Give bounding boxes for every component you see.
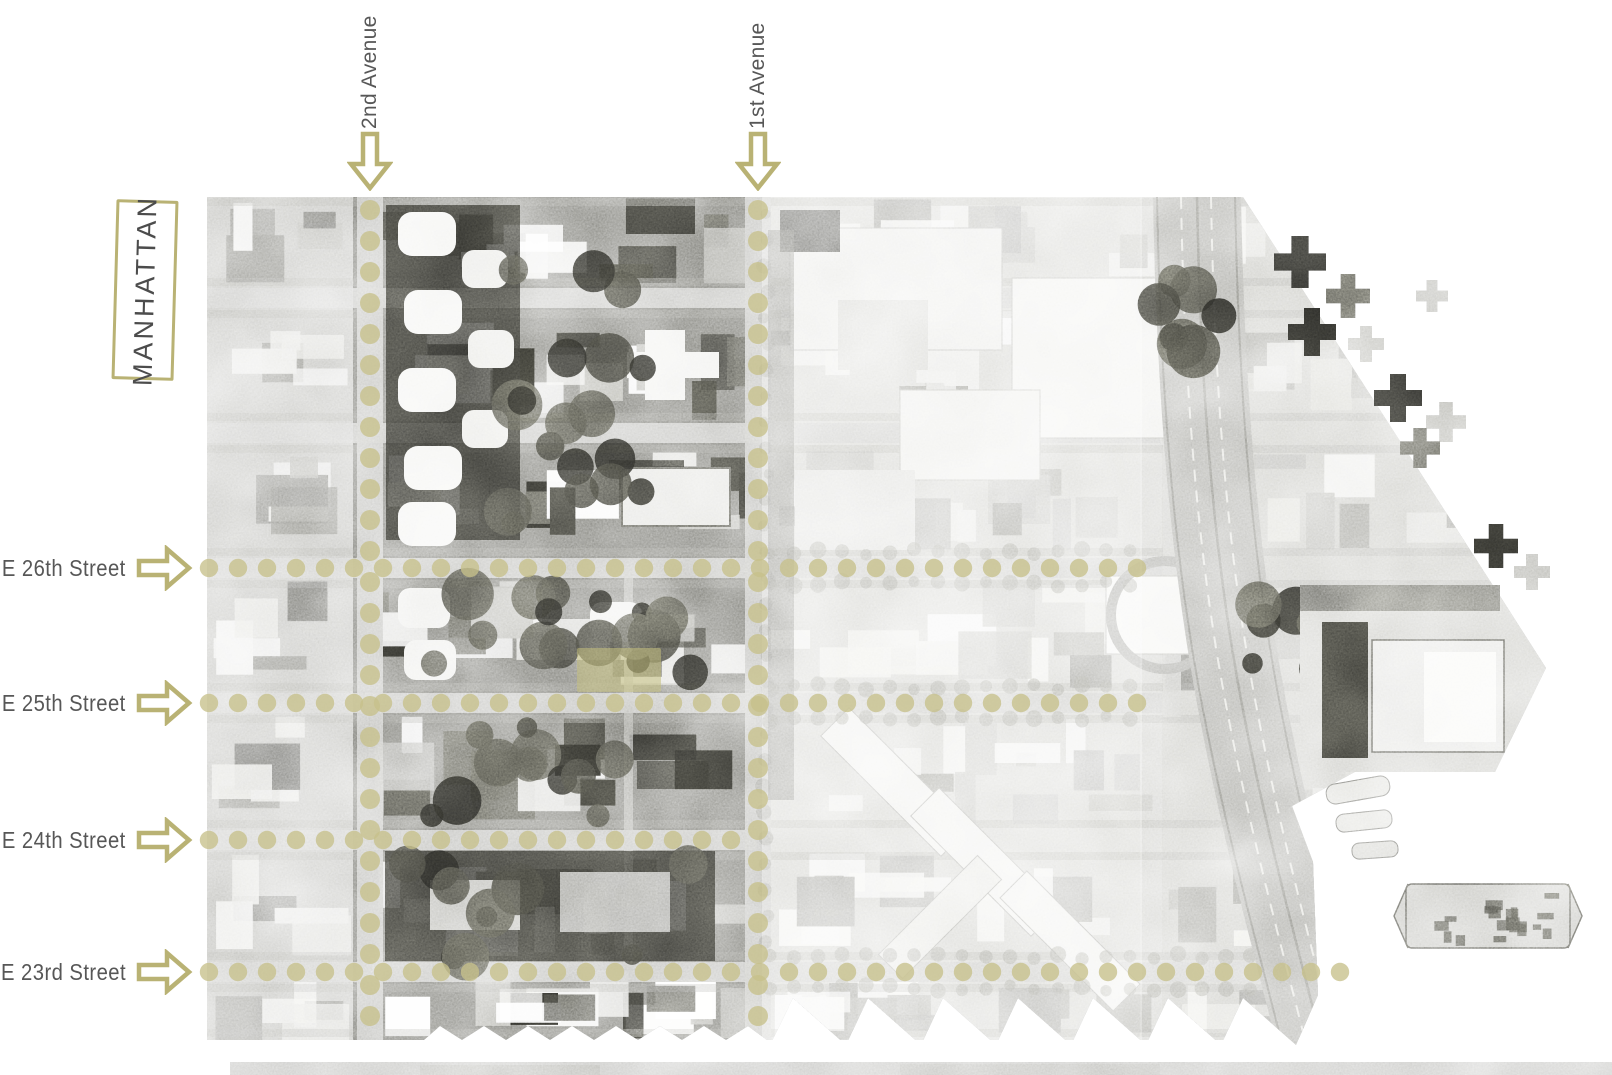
avenue-dot — [360, 851, 380, 871]
avenue-dot — [360, 231, 380, 251]
street-dot — [1041, 963, 1059, 981]
street-dot — [316, 831, 334, 849]
street-dot — [1070, 694, 1088, 712]
street-dot — [983, 694, 1001, 712]
street-dot — [635, 831, 653, 849]
street-dot — [954, 559, 972, 577]
street-dot — [577, 559, 595, 577]
street-dot — [954, 963, 972, 981]
street-dot — [722, 694, 740, 712]
street-dot — [461, 963, 479, 981]
street-dot — [896, 559, 914, 577]
street-dot — [635, 963, 653, 981]
avenue-dot — [748, 758, 768, 778]
street-dot — [1012, 963, 1030, 981]
avenue-dot — [748, 262, 768, 282]
avenue-dot — [748, 510, 768, 530]
street-dot — [693, 694, 711, 712]
avenue-dot — [748, 851, 768, 871]
street-dot — [548, 694, 566, 712]
street-dot — [258, 694, 276, 712]
avenue-dot — [360, 510, 380, 530]
avenue-dot — [748, 448, 768, 468]
avenue-dot — [360, 479, 380, 499]
street-dot — [1331, 963, 1349, 981]
avenue-dot — [360, 634, 380, 654]
street-dot — [519, 694, 537, 712]
street-dot — [925, 559, 943, 577]
street-dot — [403, 559, 421, 577]
avenue-dot — [360, 572, 380, 592]
avenue-dot — [360, 448, 380, 468]
street-dot — [867, 963, 885, 981]
street-dot — [635, 694, 653, 712]
avenue-dot — [360, 975, 380, 995]
street-dot — [838, 694, 856, 712]
street-dot — [1070, 963, 1088, 981]
street-dot — [200, 694, 218, 712]
avenue-dot — [360, 758, 380, 778]
avenue-dot — [748, 882, 768, 902]
aerial-photo — [0, 0, 1612, 1075]
avenue-dot — [360, 200, 380, 220]
street-dot — [664, 559, 682, 577]
street-dot — [780, 963, 798, 981]
street-dot — [316, 559, 334, 577]
street-dot — [287, 963, 305, 981]
avenue-dot — [748, 231, 768, 251]
avenue-dot — [748, 913, 768, 933]
street-dot — [1186, 963, 1204, 981]
street-dot — [432, 694, 450, 712]
avenue-dot — [748, 696, 768, 716]
street-dot — [374, 559, 392, 577]
avenue-dot — [748, 727, 768, 747]
street-dot — [577, 831, 595, 849]
site-highlight — [577, 648, 661, 692]
street-dot — [548, 831, 566, 849]
street-dot — [490, 559, 508, 577]
avenue-dot — [360, 293, 380, 313]
street-dot — [1099, 963, 1117, 981]
street-dot — [664, 963, 682, 981]
avenue-dot — [748, 417, 768, 437]
avenue-dot — [748, 789, 768, 809]
avenue-dot — [748, 200, 768, 220]
figure-manhattan-aerial: MANHATTAN E 26th StreetE 25th StreetE 24… — [0, 0, 1612, 1075]
street-dot — [1273, 963, 1291, 981]
street-dot — [490, 831, 508, 849]
street-dot — [403, 963, 421, 981]
street-dot — [229, 694, 247, 712]
street-dot — [1128, 963, 1146, 981]
avenue-dot — [360, 324, 380, 344]
street-dot — [693, 963, 711, 981]
avenue-dot — [748, 572, 768, 592]
street-dot — [954, 694, 972, 712]
avenue-dot — [748, 975, 768, 995]
street-dot — [722, 831, 740, 849]
street-dot — [606, 559, 624, 577]
street-dot — [461, 694, 479, 712]
street-dot — [809, 694, 827, 712]
street-dot — [1099, 694, 1117, 712]
street-dot — [258, 559, 276, 577]
avenue-dot — [748, 1006, 768, 1026]
street-dot — [780, 559, 798, 577]
street-dot — [1215, 963, 1233, 981]
street-dot — [287, 559, 305, 577]
street-dot — [838, 559, 856, 577]
street-dot — [1012, 559, 1030, 577]
street-dot — [809, 963, 827, 981]
avenue-dot — [360, 603, 380, 623]
street-dot — [229, 831, 247, 849]
avenue-dot — [360, 665, 380, 685]
street-dot — [200, 963, 218, 981]
street-dot — [345, 831, 363, 849]
avenue-dot — [748, 665, 768, 685]
street-dot — [1128, 559, 1146, 577]
avenue-dot — [748, 820, 768, 840]
street-dot — [548, 559, 566, 577]
street-dot — [577, 694, 595, 712]
street-dot — [519, 559, 537, 577]
street-dot — [925, 694, 943, 712]
avenue-dot — [360, 820, 380, 840]
street-dot — [258, 963, 276, 981]
street-dot — [577, 963, 595, 981]
street-dot — [287, 694, 305, 712]
street-dot — [461, 559, 479, 577]
avenue-dot — [360, 355, 380, 375]
street-dot — [345, 694, 363, 712]
street-dot — [693, 559, 711, 577]
street-dot — [403, 694, 421, 712]
street-dot — [432, 831, 450, 849]
street-dot — [809, 559, 827, 577]
street-dot — [1041, 694, 1059, 712]
street-dot — [693, 831, 711, 849]
street-dot — [1128, 694, 1146, 712]
street-dot — [1244, 963, 1262, 981]
street-dot — [664, 831, 682, 849]
street-dot — [896, 694, 914, 712]
avenue-dot — [360, 727, 380, 747]
avenue-dot — [748, 603, 768, 623]
street-dot — [983, 963, 1001, 981]
street-dot — [983, 559, 1001, 577]
street-dot — [1070, 559, 1088, 577]
street-dot — [867, 694, 885, 712]
street-dot — [606, 831, 624, 849]
avenue-dot — [748, 479, 768, 499]
avenue-dot — [360, 417, 380, 437]
avenue-dot — [748, 386, 768, 406]
street-dot — [432, 963, 450, 981]
street-dot — [258, 831, 276, 849]
street-dot — [722, 963, 740, 981]
street-dot — [200, 559, 218, 577]
street-dot — [606, 963, 624, 981]
avenue-dot — [360, 386, 380, 406]
street-dot — [345, 963, 363, 981]
street-dot — [1302, 963, 1320, 981]
street-dot — [287, 831, 305, 849]
street-dot — [461, 831, 479, 849]
street-dot — [548, 963, 566, 981]
street-dot — [519, 963, 537, 981]
avenue-dot — [748, 293, 768, 313]
street-dot — [490, 963, 508, 981]
street-dot — [1099, 559, 1117, 577]
avenue-dot — [748, 355, 768, 375]
street-dot — [403, 831, 421, 849]
street-dot — [316, 963, 334, 981]
avenue-dot — [748, 944, 768, 964]
avenue-dot — [360, 541, 380, 561]
street-dot — [780, 694, 798, 712]
street-dot — [229, 963, 247, 981]
avenue-dot — [360, 1006, 380, 1026]
street-dot — [519, 831, 537, 849]
avenue-dot — [360, 882, 380, 902]
avenue-dot — [748, 324, 768, 344]
avenue-dot — [360, 262, 380, 282]
street-dot — [722, 559, 740, 577]
street-dot — [606, 694, 624, 712]
street-dot — [867, 559, 885, 577]
avenue-dot — [360, 913, 380, 933]
street-dot — [200, 831, 218, 849]
street-dot — [896, 963, 914, 981]
avenue-dot — [360, 789, 380, 809]
street-dot — [925, 963, 943, 981]
street-dot — [635, 559, 653, 577]
street-dot — [490, 694, 508, 712]
avenue-dot — [360, 696, 380, 716]
street-dot — [345, 559, 363, 577]
avenue-dot — [748, 634, 768, 654]
street-dot — [432, 559, 450, 577]
street-dot — [1012, 694, 1030, 712]
street-dot — [1041, 559, 1059, 577]
street-dot — [316, 694, 334, 712]
avenue-dot — [748, 541, 768, 561]
street-dot — [1157, 963, 1175, 981]
street-dot — [838, 963, 856, 981]
street-dot — [664, 694, 682, 712]
avenue-dot — [360, 944, 380, 964]
street-dot — [229, 559, 247, 577]
